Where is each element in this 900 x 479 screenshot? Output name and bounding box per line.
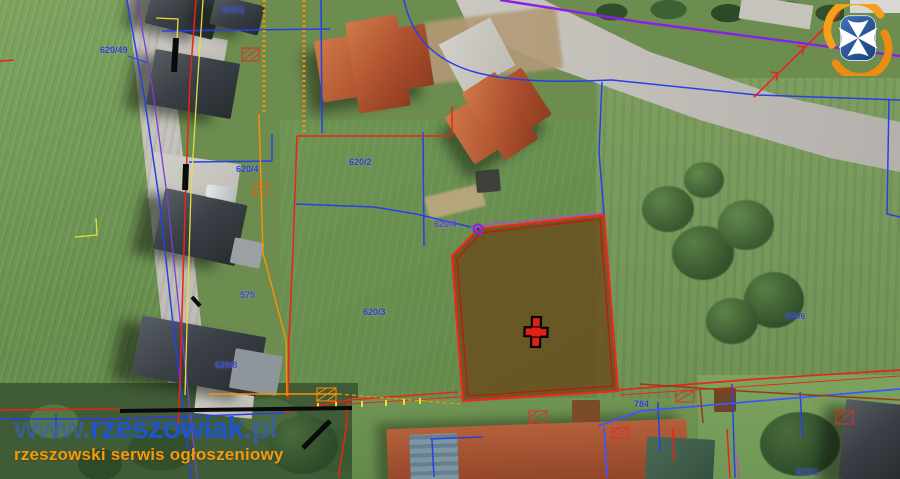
- parcel-label: 784: [634, 400, 649, 409]
- watermark-tld: .pl: [244, 410, 277, 445]
- watermark-name: rzeszowiak: [90, 410, 244, 445]
- parcel-label: 620/4: [236, 165, 259, 174]
- parcel-labels-layer: 620/49620/2620/4575620/8620/2620/3620/46…: [0, 0, 900, 479]
- map-canvas[interactable]: 620/49620/2620/4575620/8620/2620/3620/46…: [0, 0, 900, 479]
- parcel-label: 620/2: [222, 6, 245, 15]
- watermark-site: www.rzeszowiak.pl: [14, 412, 284, 443]
- watermark-tagline: rzeszowski serwis ogłoszeniowy: [14, 446, 284, 463]
- watermark: www.rzeszowiak.pl rzeszowski serwis ogło…: [14, 412, 284, 463]
- parcel-label: 620/2: [349, 158, 372, 167]
- parcel-label: 575: [240, 291, 255, 300]
- parcel-label: 620/1: [796, 468, 819, 477]
- watermark-www: www.: [14, 410, 90, 445]
- parcel-label: 620/3: [363, 308, 386, 317]
- rzeszow-crest-logo: [822, 4, 894, 76]
- parcel-label: 620/49: [100, 46, 128, 55]
- parcel-label: 620/8: [215, 361, 238, 370]
- parcel-label: 620/4: [434, 220, 457, 229]
- parcel-label: 620/6: [785, 313, 805, 321]
